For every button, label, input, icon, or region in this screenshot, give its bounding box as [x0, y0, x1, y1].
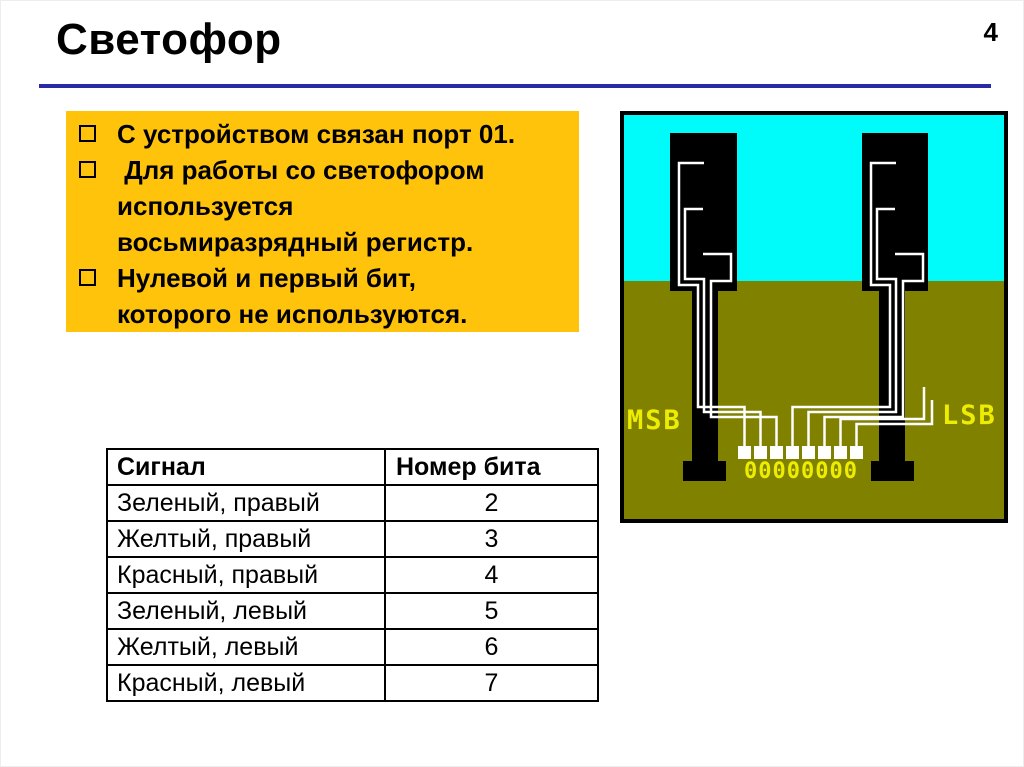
table-row: Зеленый, правый 2: [107, 485, 598, 521]
traffic-light-right-base: [871, 461, 914, 481]
signal-cell: Зеленый, правый: [107, 485, 385, 521]
bullet-item: Нулевой и первый бит, которого не исполь…: [79, 260, 573, 332]
signal-cell: Желтый, правый: [107, 521, 385, 557]
bullet-text: С устройством связан порт 01.: [117, 116, 515, 152]
checkbox-bullet-icon: [79, 125, 96, 142]
bit-cell: 4: [385, 557, 598, 593]
bit-square-3: [802, 446, 815, 459]
table-row: Красный, правый 4: [107, 557, 598, 593]
table-header-row: Сигнал Номер бита: [107, 449, 598, 485]
msb-label: MSB: [627, 405, 682, 436]
title-underline: [39, 84, 991, 88]
signal-cell: Зеленый, левый: [107, 593, 385, 629]
bit-square-7: [738, 446, 751, 459]
table-row: Желтый, правый 3: [107, 521, 598, 557]
signal-table: Сигнал Номер бита Зеленый, правый 2 Желт…: [106, 448, 599, 702]
signal-cell: Красный, правый: [107, 557, 385, 593]
bit-cell: 2: [385, 485, 598, 521]
bullet-text: Нулевой и первый бит, которого не исполь…: [117, 260, 467, 332]
bit-square-1: [834, 446, 847, 459]
checkbox-bullet-icon: [79, 161, 96, 178]
table-header-bit-number: Номер бита: [385, 449, 598, 485]
register-value: 00000000: [744, 459, 858, 484]
bit-square-6: [754, 446, 767, 459]
checkbox-bullet-icon: [79, 269, 96, 286]
bullet-item: С устройством связан порт 01.: [79, 116, 573, 152]
table-header-signal: Сигнал: [107, 449, 385, 485]
signal-cell: Желтый, левый: [107, 629, 385, 665]
page-number: 4: [984, 17, 998, 48]
slide-title: Светофор: [56, 15, 282, 65]
bit-square-4: [786, 446, 799, 459]
bit-cell: 5: [385, 593, 598, 629]
table-row: Красный, левый 7: [107, 665, 598, 701]
bit-cell: 7: [385, 665, 598, 701]
lsb-label: LSB: [942, 400, 997, 431]
traffic-light-diagram: MSB LSB 00000000: [620, 111, 1008, 523]
signal-cell: Красный, левый: [107, 665, 385, 701]
table-row: Желтый, левый 6: [107, 629, 598, 665]
bit-square-2: [818, 446, 831, 459]
slide: 4 Светофор С устройством связан порт 01.…: [0, 0, 1024, 767]
bit-cell: 6: [385, 629, 598, 665]
table-row: Зеленый, левый 5: [107, 593, 598, 629]
bit-square-5: [770, 446, 783, 459]
info-box: С устройством связан порт 01. Для работы…: [66, 111, 579, 332]
bit-square-0: [850, 446, 863, 459]
bullet-item: Для работы со светофором используется во…: [79, 152, 573, 260]
traffic-light-right-pole: [879, 291, 905, 462]
traffic-light-left-base: [683, 461, 726, 481]
bullet-text: Для работы со светофором используется во…: [117, 152, 484, 260]
bit-cell: 3: [385, 521, 598, 557]
